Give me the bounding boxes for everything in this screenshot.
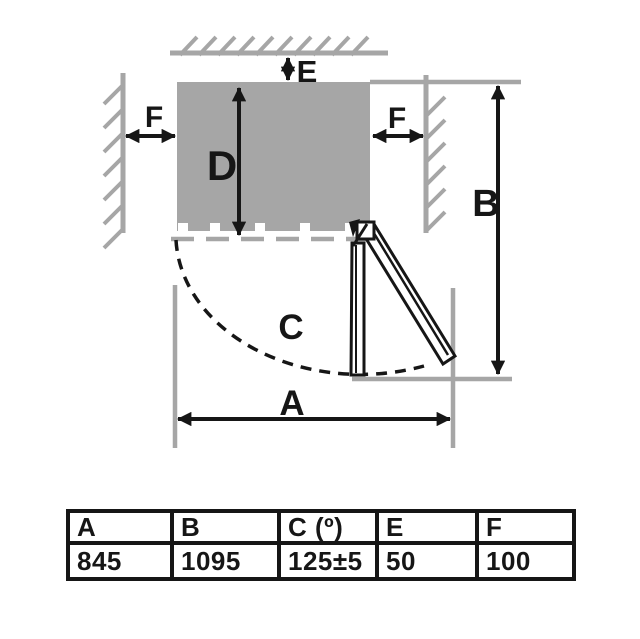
table-header-F: F [479,513,572,541]
dim-label-A: A [279,384,304,423]
dim-label-F-right: F [388,102,406,135]
dim-label-D: D [207,142,237,189]
table-header-C: C (º) [281,513,375,541]
table-header-E: E [379,513,475,541]
table-header-A: A [70,513,170,541]
table-value-B: 1095 [174,545,277,577]
table-value-A: 845 [70,545,170,577]
appliance-front-strip [177,225,370,231]
dimensions-table: A B C (º) E F 845 1095 125±5 50 100 [66,509,576,581]
table-value-F: 100 [479,545,572,577]
door-open-max-inner-line [372,230,448,355]
dim-label-C: C [278,308,303,347]
dim-label-E: E [297,54,318,89]
clearance-diagram: E F F D B C A [0,0,640,500]
dim-label-F-left: F [145,101,163,134]
left-wall-hatching [104,85,123,248]
right-wall-hatching [426,97,445,231]
appliance-clearance-page: E F F D B C A A B C (º) E F 845 1095 125… [0,0,640,639]
door-open-90 [351,243,364,375]
table-value-C: 125±5 [281,545,375,577]
dim-label-B: B [472,183,499,225]
table-value-E: 50 [379,545,475,577]
table-header-B: B [174,513,277,541]
